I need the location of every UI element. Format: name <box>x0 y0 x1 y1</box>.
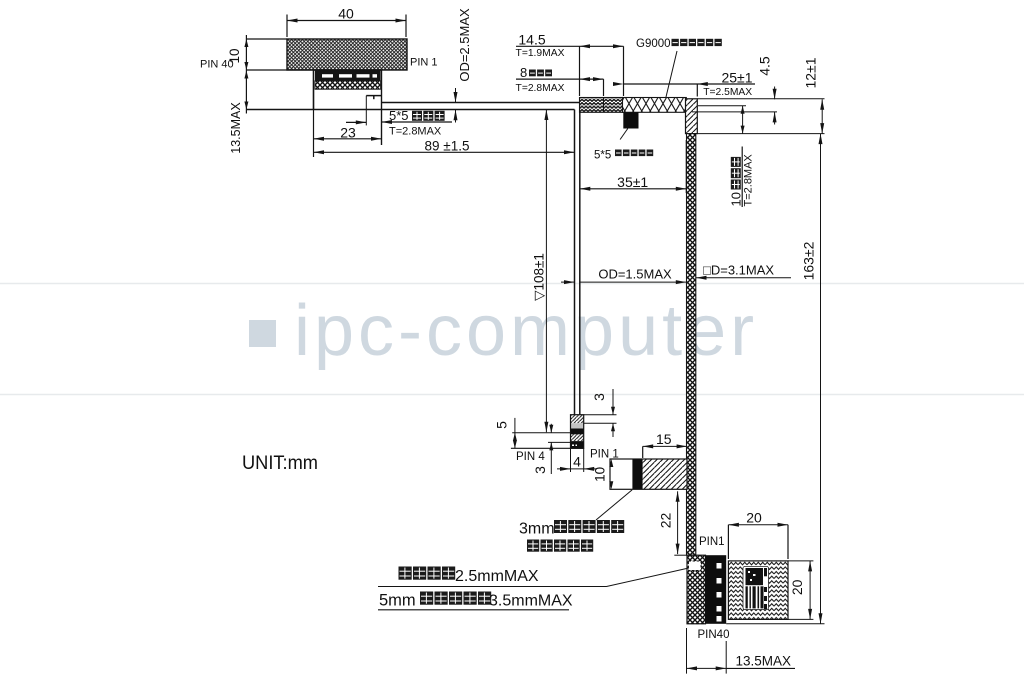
svg-text:5: 5 <box>493 421 509 429</box>
svg-text:3: 3 <box>532 466 548 474</box>
svg-text:T=1.9MAX: T=1.9MAX <box>516 48 565 59</box>
svg-text:20: 20 <box>789 579 805 595</box>
svg-text:89 ±1.5: 89 ±1.5 <box>425 139 470 154</box>
svg-text:T=2.5MAX: T=2.5MAX <box>703 87 752 98</box>
svg-text:OD=2.5MAX: OD=2.5MAX <box>457 8 472 82</box>
svg-text:35±1: 35±1 <box>617 174 648 190</box>
svg-text:4.5: 4.5 <box>756 56 772 76</box>
svg-text:T=2.8MAX: T=2.8MAX <box>743 154 755 207</box>
svg-text:3mm: 3mm <box>519 521 555 538</box>
svg-text:13.5MAX: 13.5MAX <box>736 654 792 669</box>
svg-text:12±1: 12±1 <box>803 57 819 88</box>
svg-text:163±2: 163±2 <box>801 241 817 280</box>
svg-text:T=2.8MAX: T=2.8MAX <box>516 83 565 94</box>
svg-text:10: 10 <box>729 192 744 206</box>
svg-text:13.5MAX: 13.5MAX <box>229 102 243 154</box>
svg-text:5*5: 5*5 <box>389 108 409 123</box>
svg-text:PIN40: PIN40 <box>698 629 730 641</box>
svg-text:PIN 4: PIN 4 <box>516 451 545 463</box>
svg-text:22: 22 <box>658 513 674 529</box>
svg-text:20: 20 <box>746 510 762 526</box>
svg-text:T=2.8MAX: T=2.8MAX <box>389 126 442 138</box>
svg-text:15: 15 <box>656 431 672 447</box>
svg-text:2.5mmMAX: 2.5mmMAX <box>455 568 539 585</box>
svg-text:40: 40 <box>338 6 354 22</box>
svg-text:OD=1.5MAX: OD=1.5MAX <box>598 267 672 282</box>
svg-text:10: 10 <box>227 48 242 63</box>
svg-text:G9000: G9000 <box>636 38 671 50</box>
svg-text:8: 8 <box>520 65 527 80</box>
svg-text:5*5: 5*5 <box>594 150 611 162</box>
svg-text:3: 3 <box>591 393 607 401</box>
svg-text:PIN 1: PIN 1 <box>410 57 438 69</box>
svg-text:▽108±1: ▽108±1 <box>532 253 547 301</box>
svg-text:□D=3.1MAX: □D=3.1MAX <box>703 263 774 278</box>
svg-text:23: 23 <box>340 125 356 141</box>
svg-text:3.5mmMAX: 3.5mmMAX <box>489 593 573 610</box>
svg-text:PIN1: PIN1 <box>699 536 725 548</box>
svg-text:UNIT:mm: UNIT:mm <box>242 453 318 474</box>
svg-text:25±1: 25±1 <box>721 70 752 86</box>
svg-text:4: 4 <box>573 454 581 470</box>
svg-text:10: 10 <box>593 467 608 482</box>
svg-text:5mm: 5mm <box>379 592 416 610</box>
svg-text:14.5: 14.5 <box>518 32 545 48</box>
